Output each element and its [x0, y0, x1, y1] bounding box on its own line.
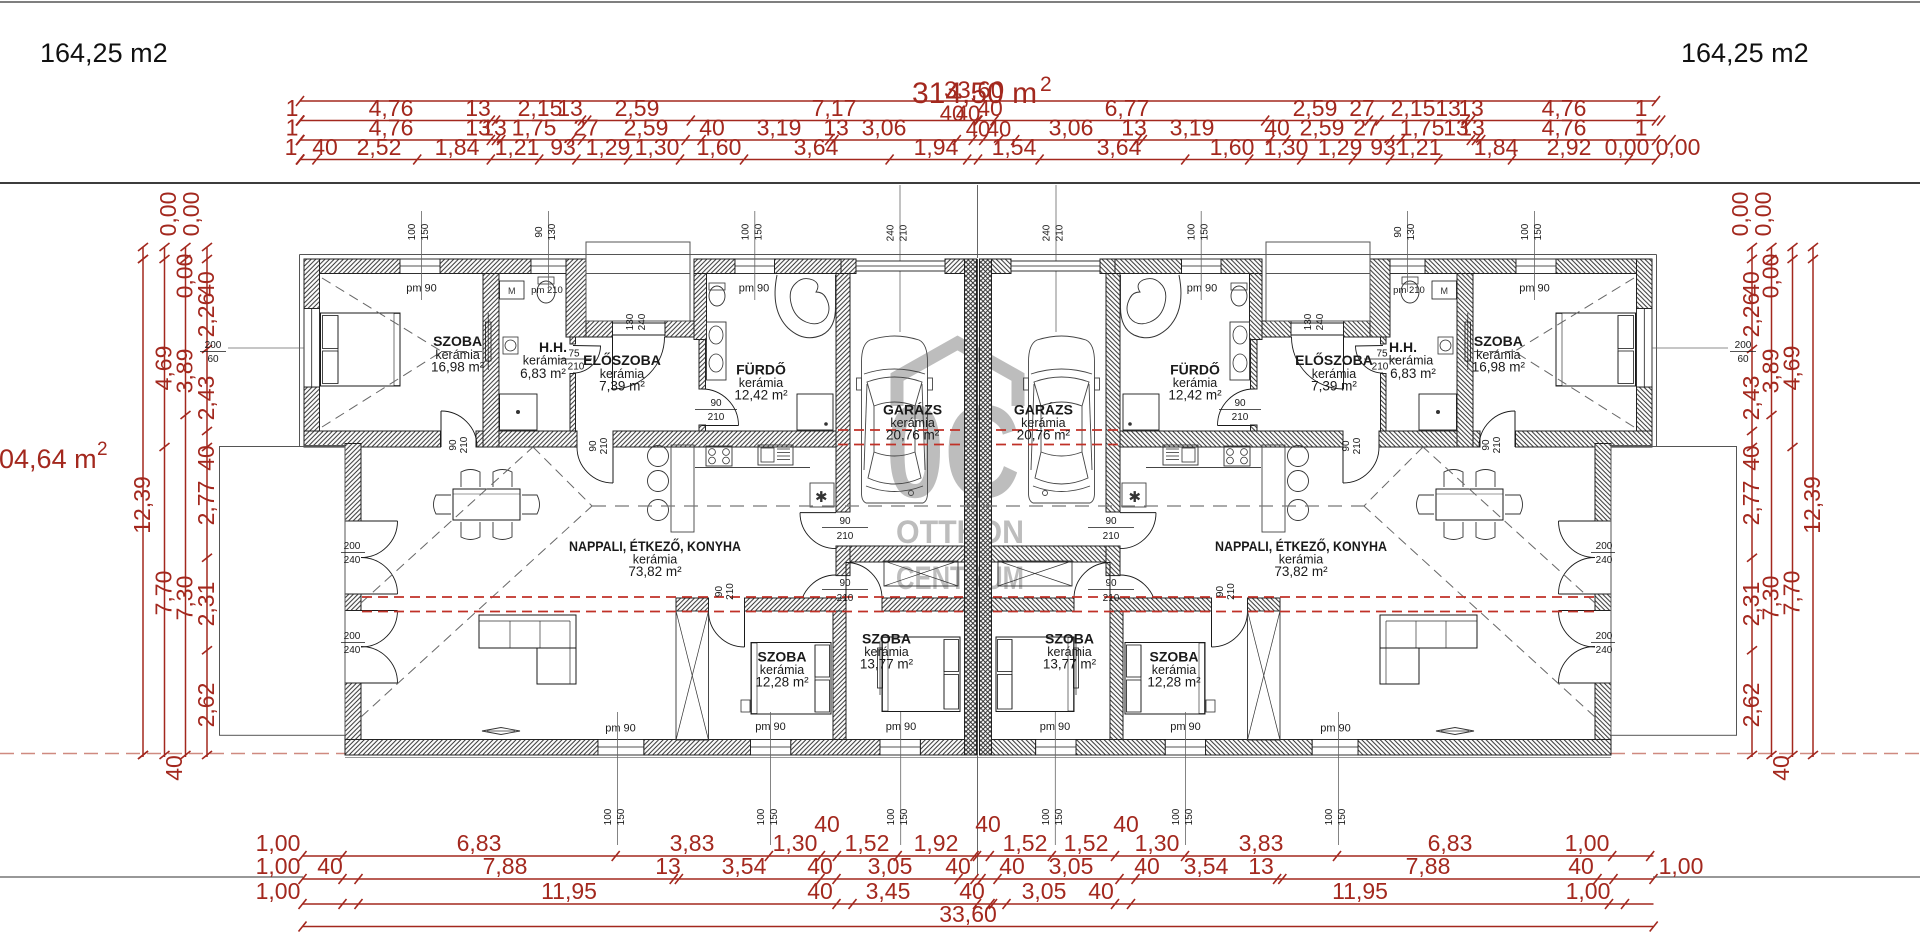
svg-text:1,29: 1,29	[1318, 134, 1363, 160]
svg-text:11,95: 11,95	[541, 878, 597, 904]
svg-text:2: 2	[97, 439, 108, 460]
svg-text:75: 75	[1376, 349, 1388, 360]
svg-text:210: 210	[459, 436, 470, 453]
svg-text:40: 40	[814, 811, 840, 837]
svg-text:40: 40	[807, 878, 833, 904]
svg-text:100: 100	[407, 223, 418, 240]
svg-text:210: 210	[1232, 412, 1249, 423]
svg-text:CENTRUM: CENTRUM	[896, 560, 1024, 596]
svg-text:210: 210	[1226, 583, 1237, 600]
svg-text:73,82 m²: 73,82 m²	[1274, 564, 1328, 579]
svg-text:200: 200	[205, 340, 222, 351]
svg-text:2,31: 2,31	[1738, 582, 1764, 627]
svg-text:1,84: 1,84	[435, 134, 480, 160]
svg-text:240: 240	[1596, 645, 1613, 656]
svg-text:210: 210	[599, 437, 610, 454]
svg-text:210: 210	[568, 362, 585, 373]
svg-text:13,77 m²: 13,77 m²	[860, 657, 914, 672]
svg-text:1,30: 1,30	[1264, 134, 1309, 160]
svg-text:40: 40	[1738, 445, 1764, 471]
svg-text:40: 40	[1113, 811, 1139, 837]
svg-text:90: 90	[534, 226, 545, 238]
svg-text:90: 90	[1481, 439, 1492, 451]
svg-text:2,77: 2,77	[1738, 481, 1764, 526]
svg-text:2,92: 2,92	[1547, 134, 1592, 160]
svg-text:40: 40	[312, 134, 338, 160]
svg-text:1: 1	[285, 134, 298, 160]
svg-text:200: 200	[344, 631, 361, 642]
svg-text:100: 100	[603, 808, 614, 825]
svg-text:OTTHON: OTTHON	[896, 514, 1024, 550]
svg-text:1,60: 1,60	[697, 134, 742, 160]
svg-text:M: M	[508, 286, 516, 296]
svg-text:150: 150	[769, 808, 780, 825]
svg-text:12,28 m²: 12,28 m²	[755, 675, 809, 690]
svg-text:1,21: 1,21	[1397, 134, 1442, 160]
svg-text:210: 210	[837, 593, 854, 604]
svg-text:13: 13	[1248, 853, 1274, 879]
svg-text:40: 40	[807, 853, 833, 879]
svg-text:2,43: 2,43	[1738, 376, 1764, 421]
svg-text:210: 210	[1352, 437, 1363, 454]
svg-text:SZOBA: SZOBA	[433, 333, 482, 349]
svg-text:100: 100	[886, 808, 897, 825]
svg-text:90: 90	[448, 439, 459, 451]
svg-text:73,82 m²: 73,82 m²	[628, 564, 682, 579]
svg-text:200: 200	[1596, 541, 1613, 552]
svg-text:164,25 m2: 164,25 m2	[40, 38, 168, 68]
svg-text:12,39: 12,39	[1799, 476, 1825, 534]
svg-text:130: 130	[1406, 223, 1417, 240]
svg-text:7,39 m²: 7,39 m²	[599, 379, 645, 394]
svg-text:210: 210	[837, 531, 854, 542]
svg-text:ELŐSZOBA: ELŐSZOBA	[1295, 351, 1373, 368]
svg-text:40: 40	[317, 853, 343, 879]
svg-text:3,54: 3,54	[722, 853, 767, 879]
svg-text:1,00: 1,00	[256, 878, 301, 904]
svg-text:90: 90	[714, 586, 725, 598]
svg-text:SZOBA: SZOBA	[1474, 333, 1523, 349]
svg-text:150: 150	[1200, 223, 1211, 240]
svg-text:12,39: 12,39	[129, 476, 155, 534]
svg-text:33,60: 33,60	[939, 901, 997, 927]
svg-text:60: 60	[1737, 354, 1749, 365]
svg-text:20,76 m²: 20,76 m²	[1017, 428, 1071, 443]
svg-text:93: 93	[1370, 134, 1396, 160]
svg-text:16,98 m²: 16,98 m²	[1472, 360, 1526, 375]
svg-text:2,52: 2,52	[357, 134, 402, 160]
svg-text:1,00: 1,00	[256, 853, 301, 879]
svg-text:150: 150	[753, 223, 764, 240]
svg-text:210: 210	[899, 224, 910, 241]
svg-text:200: 200	[344, 541, 361, 552]
svg-text:pm 210: pm 210	[1393, 285, 1425, 296]
svg-text:2,26: 2,26	[193, 293, 219, 338]
svg-text:90: 90	[1234, 398, 1246, 409]
svg-text:1,29: 1,29	[586, 134, 631, 160]
svg-text:200: 200	[1596, 631, 1613, 642]
svg-text:40: 40	[987, 117, 1011, 142]
svg-text:40: 40	[161, 755, 187, 781]
svg-text:210: 210	[1103, 593, 1120, 604]
svg-text:FÜRDŐ: FÜRDŐ	[1170, 361, 1220, 378]
svg-text:150: 150	[1054, 808, 1065, 825]
svg-text:pm 90: pm 90	[605, 723, 636, 735]
svg-text:90: 90	[839, 516, 851, 527]
svg-text:pm 90: pm 90	[739, 283, 770, 295]
svg-text:210: 210	[1492, 436, 1503, 453]
svg-text:pm 90: pm 90	[1320, 723, 1351, 735]
svg-text:3,19: 3,19	[1170, 115, 1215, 141]
svg-text:130: 130	[625, 313, 636, 330]
svg-text:3,05: 3,05	[868, 853, 913, 879]
svg-text:13: 13	[655, 853, 681, 879]
svg-text:150: 150	[420, 223, 431, 240]
svg-text:130: 130	[547, 223, 558, 240]
svg-text:7,88: 7,88	[483, 853, 528, 879]
svg-text:304,64 m: 304,64 m	[0, 444, 97, 474]
svg-text:40: 40	[1088, 878, 1114, 904]
svg-text:100: 100	[1171, 808, 1182, 825]
svg-text:ELŐSZOBA: ELŐSZOBA	[583, 351, 661, 368]
svg-text:100: 100	[756, 808, 767, 825]
svg-text:164,25 m2: 164,25 m2	[1681, 38, 1809, 68]
svg-text:FÜRDŐ: FÜRDŐ	[736, 361, 786, 378]
svg-text:90: 90	[588, 440, 599, 452]
svg-text:60: 60	[207, 354, 219, 365]
svg-text:6,83 m²: 6,83 m²	[520, 366, 566, 381]
svg-text:0,00: 0,00	[178, 192, 204, 237]
svg-text:40: 40	[975, 811, 1001, 837]
svg-text:240: 240	[637, 313, 648, 330]
svg-text:100: 100	[1324, 808, 1335, 825]
svg-text:150: 150	[1533, 223, 1544, 240]
svg-text:240: 240	[1042, 224, 1053, 241]
svg-text:pm 210: pm 210	[531, 285, 563, 296]
svg-text:2,62: 2,62	[193, 683, 219, 728]
svg-text:210: 210	[1055, 224, 1066, 241]
svg-text:1,00: 1,00	[1659, 853, 1704, 879]
svg-text:3,64: 3,64	[794, 134, 839, 160]
svg-text:40: 40	[193, 445, 219, 471]
svg-text:150: 150	[1184, 808, 1195, 825]
svg-text:0,00: 0,00	[1605, 134, 1650, 160]
svg-text:6,83 m²: 6,83 m²	[1390, 366, 1436, 381]
svg-text:210: 210	[1103, 531, 1120, 542]
svg-text:NAPPALI, ÉTKEZŐ, KONYHA: NAPPALI, ÉTKEZŐ, KONYHA	[569, 537, 741, 554]
svg-text:90: 90	[1105, 578, 1117, 589]
svg-text:1,30: 1,30	[635, 134, 680, 160]
svg-text:90: 90	[710, 398, 722, 409]
svg-text:75: 75	[568, 349, 580, 360]
svg-text:1,00: 1,00	[1566, 878, 1611, 904]
svg-text:90: 90	[1341, 440, 1352, 452]
svg-text:12,42 m²: 12,42 m²	[1168, 388, 1222, 403]
svg-text:11,95: 11,95	[1332, 878, 1388, 904]
svg-text:150: 150	[1337, 808, 1348, 825]
svg-text:2: 2	[1040, 73, 1052, 96]
svg-text:100: 100	[740, 223, 751, 240]
svg-text:1,94: 1,94	[914, 134, 959, 160]
svg-text:✱: ✱	[815, 489, 828, 506]
svg-text:100: 100	[1520, 223, 1531, 240]
svg-text:40: 40	[1134, 853, 1160, 879]
svg-text:7,88: 7,88	[1406, 853, 1451, 879]
svg-text:0,00: 0,00	[1656, 134, 1701, 160]
svg-text:3,54: 3,54	[1184, 853, 1229, 879]
svg-text:240: 240	[344, 555, 361, 566]
svg-text:2,26: 2,26	[1738, 293, 1764, 338]
svg-text:240: 240	[1315, 313, 1326, 330]
svg-text:240: 240	[886, 224, 897, 241]
svg-text:40: 40	[1768, 755, 1794, 781]
svg-text:1,60: 1,60	[1210, 134, 1255, 160]
svg-text:100: 100	[1187, 223, 1198, 240]
svg-text:210: 210	[725, 583, 736, 600]
svg-text:2,77: 2,77	[193, 481, 219, 526]
svg-text:40: 40	[945, 853, 971, 879]
svg-text:NAPPALI, ÉTKEZŐ, KONYHA: NAPPALI, ÉTKEZŐ, KONYHA	[1215, 537, 1387, 554]
svg-text:16,98 m²: 16,98 m²	[431, 360, 485, 375]
svg-text:130: 130	[1303, 313, 1314, 330]
svg-text:210: 210	[1372, 362, 1389, 373]
svg-text:7,39 m²: 7,39 m²	[1311, 379, 1357, 394]
svg-text:240: 240	[1596, 555, 1613, 566]
svg-text:150: 150	[899, 808, 910, 825]
svg-text:90: 90	[1393, 226, 1404, 238]
svg-text:3,05: 3,05	[1022, 878, 1067, 904]
svg-text:40: 40	[999, 853, 1025, 879]
svg-text:40: 40	[1568, 853, 1594, 879]
svg-text:90: 90	[1215, 586, 1226, 598]
svg-text:3,06: 3,06	[1049, 115, 1094, 141]
svg-text:2,31: 2,31	[193, 582, 219, 627]
svg-text:100: 100	[1041, 808, 1052, 825]
svg-text:20,76 m²: 20,76 m²	[886, 428, 940, 443]
svg-text:210: 210	[708, 412, 725, 423]
svg-text:pm 90: pm 90	[1187, 283, 1218, 295]
svg-text:3,64: 3,64	[1097, 134, 1142, 160]
svg-text:1,84: 1,84	[1474, 134, 1519, 160]
svg-text:33,60: 33,60	[944, 77, 1004, 104]
svg-text:3,05: 3,05	[1049, 853, 1094, 879]
svg-text:3,06: 3,06	[862, 115, 907, 141]
svg-text:12,42 m²: 12,42 m²	[734, 388, 788, 403]
svg-text:90: 90	[839, 578, 851, 589]
svg-text:90: 90	[1105, 516, 1117, 527]
svg-text:2,43: 2,43	[193, 376, 219, 421]
svg-text:3,45: 3,45	[866, 878, 911, 904]
svg-text:0,00: 0,00	[1750, 192, 1776, 237]
svg-text:93: 93	[550, 134, 576, 160]
svg-text:1,21: 1,21	[495, 134, 540, 160]
svg-text:150: 150	[616, 808, 627, 825]
svg-text:2,62: 2,62	[1738, 683, 1764, 728]
svg-text:12,28 m²: 12,28 m²	[1147, 675, 1201, 690]
svg-text:240: 240	[344, 645, 361, 656]
svg-text:200: 200	[1735, 340, 1752, 351]
svg-text:13,77 m²: 13,77 m²	[1043, 657, 1097, 672]
